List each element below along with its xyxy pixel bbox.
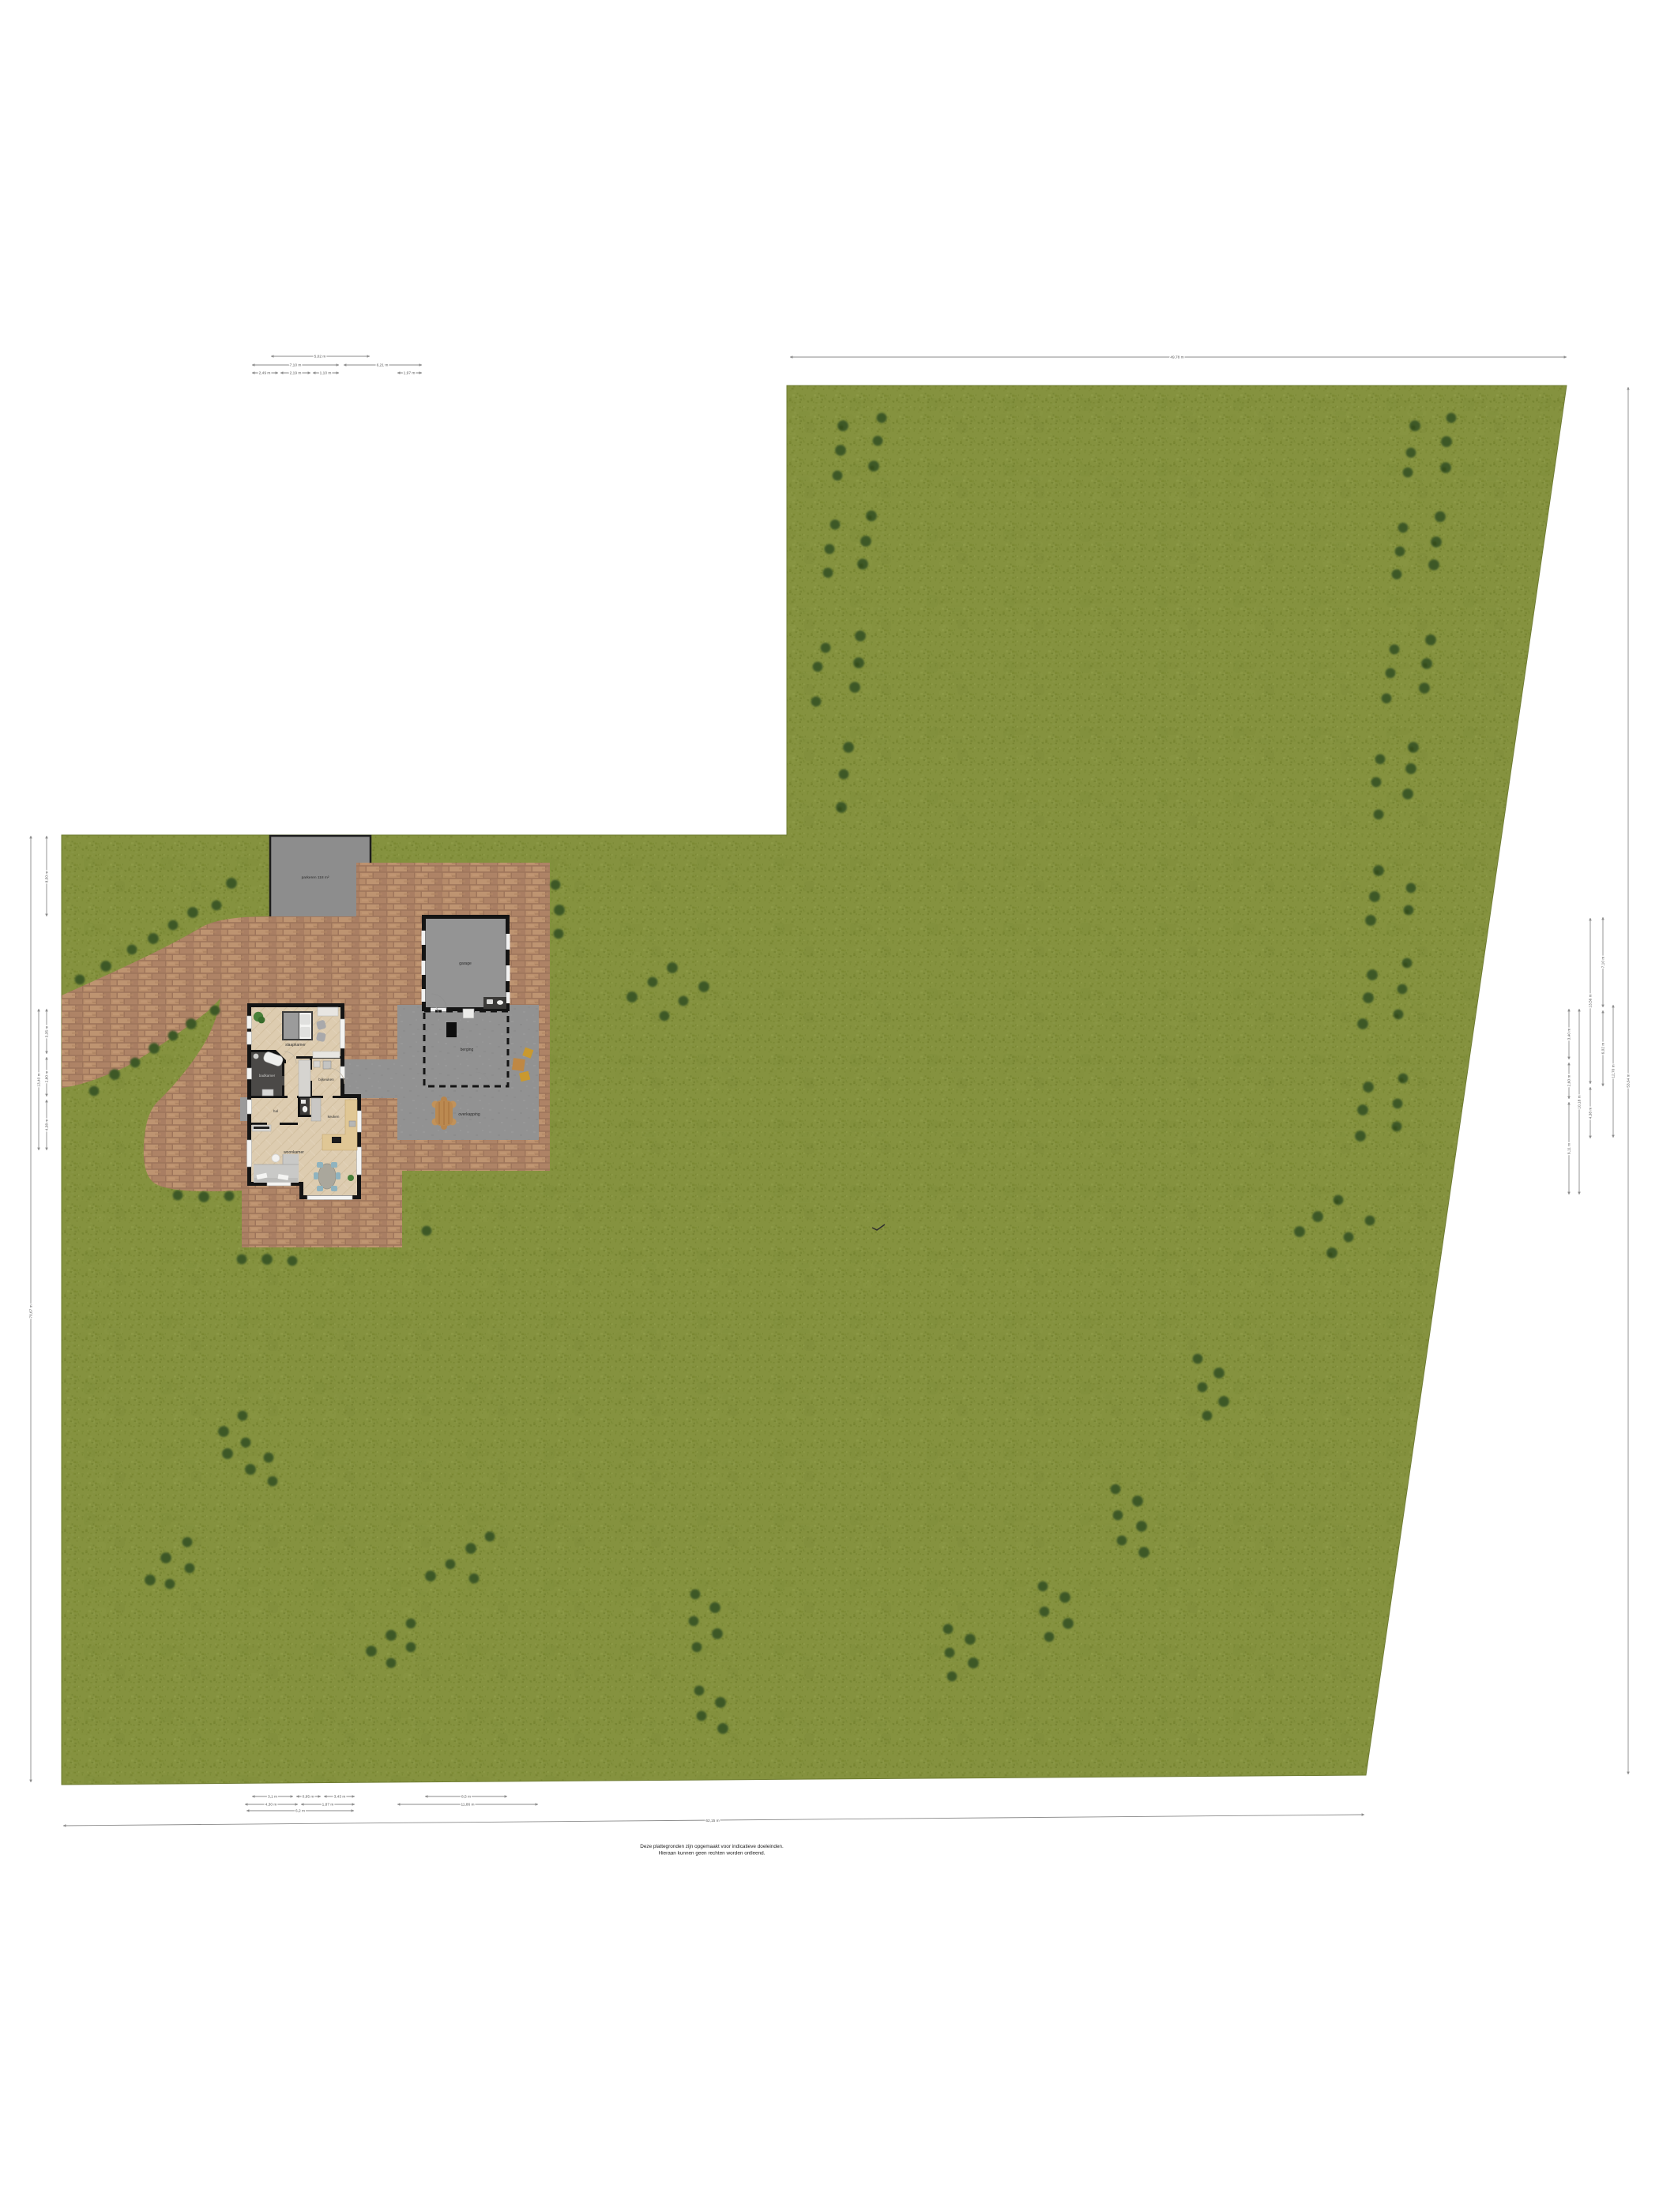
svg-text:hal: hal	[273, 1109, 278, 1113]
svg-text:62,15 m: 62,15 m	[705, 1819, 719, 1823]
svg-text:6,02 m: 6,02 m	[1601, 1043, 1606, 1055]
svg-text:Hieraan kunnen geen rechten wo: Hieraan kunnen geen rechten worden ontle…	[658, 1851, 765, 1856]
svg-text:1,87 m: 1,87 m	[322, 1803, 334, 1808]
svg-text:13,56 m: 13,56 m	[1589, 994, 1593, 1007]
svg-text:8,5 m: 8,5 m	[461, 1795, 471, 1800]
svg-text:1,97 m: 1,97 m	[404, 371, 416, 376]
svg-text:1,10 m: 1,10 m	[320, 371, 332, 376]
svg-text:6,21 m: 6,21 m	[377, 363, 389, 368]
svg-text:berging: berging	[461, 1048, 474, 1052]
svg-text:7,10 m: 7,10 m	[1601, 957, 1606, 969]
svg-text:4,38 m: 4,38 m	[1589, 1108, 1593, 1119]
svg-text:53,64 m: 53,64 m	[1627, 1074, 1631, 1087]
svg-text:8,50 m: 8,50 m	[45, 871, 50, 883]
svg-text:3,1 m: 3,1 m	[268, 1795, 277, 1800]
svg-text:Deze plattegronden zijn opgema: Deze plattegronden zijn opgemaakt voor i…	[640, 1844, 784, 1849]
svg-text:woonkamer: woonkamer	[284, 1150, 304, 1155]
svg-text:0,95 m: 0,95 m	[303, 1795, 314, 1800]
svg-text:3,43 m: 3,43 m	[334, 1795, 346, 1800]
svg-text:2,19 m: 2,19 m	[290, 371, 302, 376]
svg-text:9,11 m: 9,11 m	[1567, 1143, 1572, 1154]
svg-text:2,49 m: 2,49 m	[259, 371, 271, 376]
svg-text:bijkeuken: bijkeuken	[318, 1078, 334, 1082]
svg-text:badkamer: badkamer	[259, 1074, 276, 1078]
svg-text:12,70 m: 12,70 m	[1612, 1064, 1616, 1078]
svg-text:slaapkamer: slaapkamer	[285, 1043, 306, 1048]
svg-text:10,18 m: 10,18 m	[1578, 1095, 1582, 1108]
svg-text:2,80 m: 2,80 m	[45, 1071, 50, 1083]
svg-text:70,67 m: 70,67 m	[29, 1304, 34, 1318]
svg-text:3,35 m: 3,35 m	[45, 1026, 50, 1038]
svg-text:garage: garage	[459, 961, 472, 966]
svg-text:overkapping: overkapping	[458, 1112, 480, 1117]
svg-text:parkeren 118 m²: parkeren 118 m²	[302, 875, 329, 880]
svg-text:49,78 m: 49,78 m	[1170, 355, 1183, 360]
svg-text:4,38 m: 4,38 m	[45, 1119, 50, 1131]
svg-text:4,30 m: 4,30 m	[265, 1803, 277, 1808]
svg-text:6,2 m: 6,2 m	[295, 1809, 305, 1814]
svg-text:5,02 m: 5,02 m	[314, 355, 326, 359]
svg-text:13,40 m: 13,40 m	[37, 1073, 42, 1086]
svg-text:3,40 m: 3,40 m	[1567, 1029, 1572, 1040]
svg-text:keuken: keuken	[328, 1115, 340, 1119]
svg-text:2,60 m: 2,60 m	[1567, 1075, 1572, 1087]
svg-text:11,86 m: 11,86 m	[461, 1803, 475, 1808]
svg-text:7,10 m: 7,10 m	[290, 363, 302, 368]
